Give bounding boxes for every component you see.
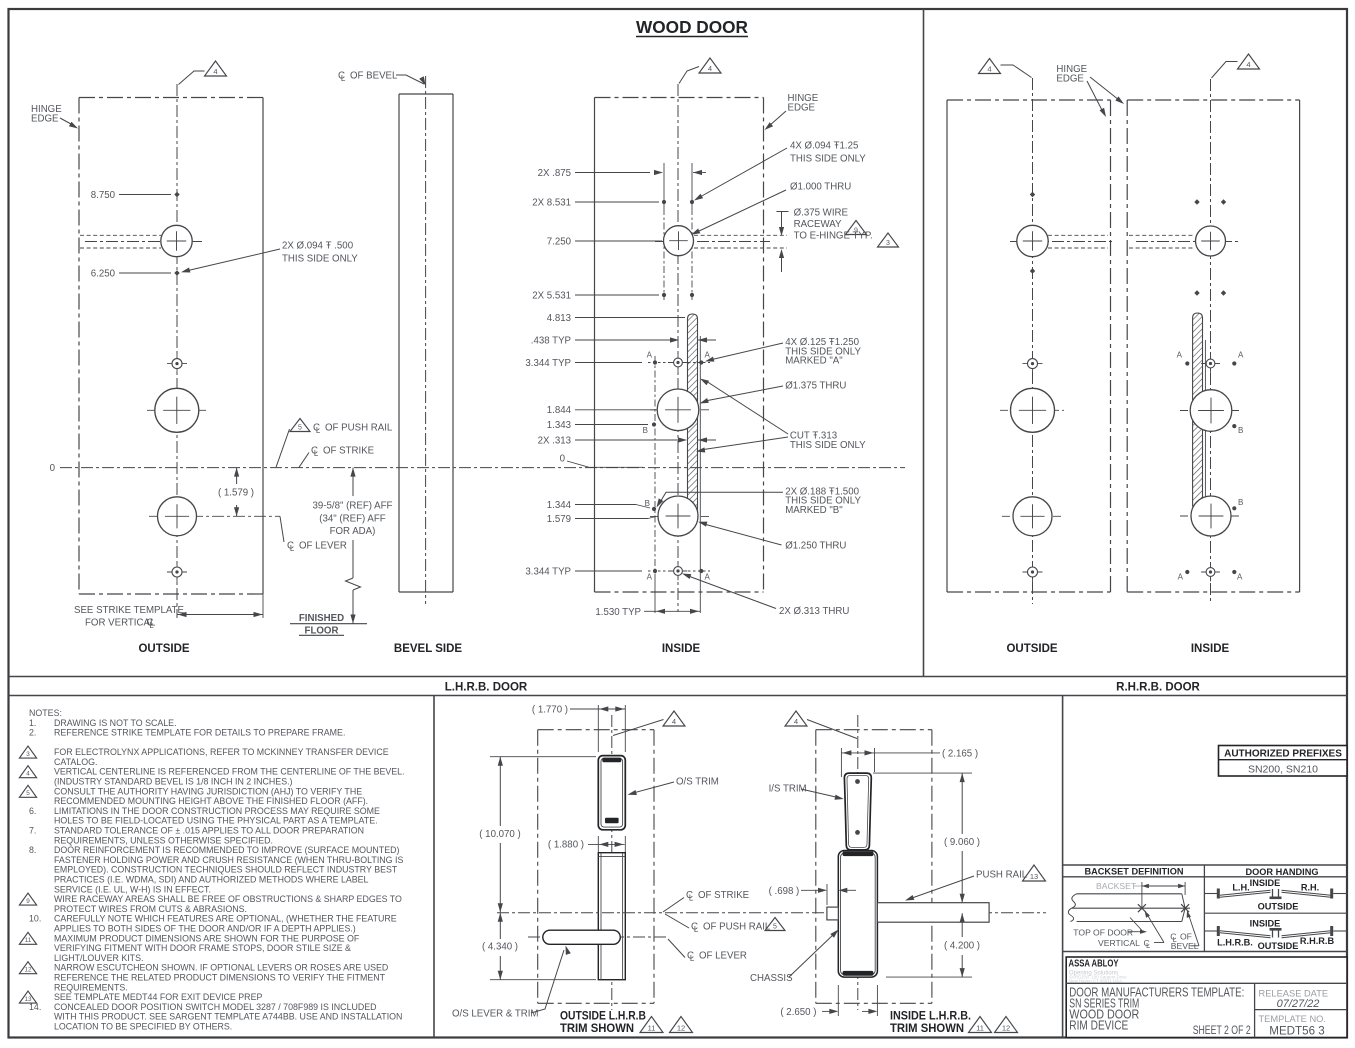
svg-text:New Haven CT 06511 USA: New Haven CT 06511 USA <box>1069 979 1122 984</box>
svg-text:EDGE: EDGE <box>31 114 59 125</box>
svg-text:RIM DEVICE: RIM DEVICE <box>1069 1019 1128 1033</box>
svg-text:R.H.R.B: R.H.R.B <box>1300 936 1335 946</box>
svg-text:2X Ø.094 Ŧ .500: 2X Ø.094 Ŧ .500 <box>282 241 354 252</box>
svg-text:7.250: 7.250 <box>547 236 572 247</box>
svg-text:( 10.070 ): ( 10.070 ) <box>479 829 520 840</box>
svg-text:5: 5 <box>773 923 777 930</box>
svg-text:0: 0 <box>50 463 56 474</box>
svg-text:Ø1.000 THRU: Ø1.000 THRU <box>790 182 851 193</box>
svg-text:WIRE RACEWAY AREAS SHALL BE FR: WIRE RACEWAY AREAS SHALL BE FREE OF OBST… <box>54 894 402 904</box>
svg-text:1.: 1. <box>29 718 36 728</box>
svg-text:FOR VERTICAL: FOR VERTICAL <box>85 617 156 628</box>
svg-text:EMPLOYED). CONSTRUCTION TECHNI: EMPLOYED). CONSTRUCTION TECHNIQUES SHOUL… <box>54 865 398 875</box>
svg-text:L: L <box>314 449 319 458</box>
svg-text:A: A <box>705 351 711 360</box>
svg-text:( 4.200 ): ( 4.200 ) <box>944 940 980 951</box>
svg-text:AUTHORIZED PREFIXES: AUTHORIZED PREFIXES <box>1224 749 1342 760</box>
svg-text:BEVEL SIDE: BEVEL SIDE <box>394 643 462 655</box>
svg-text:OF LEVER: OF LEVER <box>299 541 347 552</box>
svg-text:4: 4 <box>672 717 676 726</box>
svg-text:( .698 ): ( .698 ) <box>769 886 800 897</box>
svg-text:OUTSIDE: OUTSIDE <box>1006 643 1057 655</box>
svg-text:3: 3 <box>886 240 890 247</box>
svg-text:SHEET 2 OF 2: SHEET 2 OF 2 <box>1193 1024 1251 1037</box>
svg-text:4: 4 <box>1246 60 1250 69</box>
svg-text:8.750: 8.750 <box>91 190 116 201</box>
svg-text:TRIM SHOWN: TRIM SHOWN <box>560 1021 634 1035</box>
svg-text:A: A <box>705 573 711 582</box>
svg-text:A: A <box>1238 351 1244 360</box>
svg-text:O/S TRIM: O/S TRIM <box>676 777 719 788</box>
svg-text:( 2.650 ): ( 2.650 ) <box>780 1007 816 1018</box>
svg-text:2X .313: 2X .313 <box>538 435 571 446</box>
svg-text:VERTICAL: VERTICAL <box>1098 938 1140 948</box>
svg-text:3.344 TYP: 3.344 TYP <box>525 358 571 369</box>
svg-text:TEMPLATE NO.: TEMPLATE NO. <box>1259 1014 1327 1024</box>
svg-text:NOTES:: NOTES: <box>29 708 62 718</box>
svg-text:(34" (REF) AFF: (34" (REF) AFF <box>319 513 385 524</box>
svg-text:WITH THIS PRODUCT. SEE SARGEN: WITH THIS PRODUCT. SEE SARGENT TEMPLATE … <box>54 1012 402 1022</box>
svg-text:VERTICAL CENTERLINE IS REFEREN: VERTICAL CENTERLINE IS REFERENCED FROM T… <box>54 767 405 777</box>
svg-text:PROTECT WIRES FROM CUTS & ABRA: PROTECT WIRES FROM CUTS & ABRASIONS. <box>54 904 247 914</box>
svg-text:1.530 TYP: 1.530 TYP <box>595 607 641 618</box>
svg-text:1.844: 1.844 <box>547 405 572 416</box>
svg-text:STANDARD TOLERANCE OF ± .015 A: STANDARD TOLERANCE OF ± .015 APPLIES TO … <box>54 826 364 836</box>
svg-text:L: L <box>341 74 346 83</box>
svg-text:TOP OF DOOR: TOP OF DOOR <box>1073 928 1133 938</box>
svg-text:FOR ELECTROLYNX APPLICATIONS,: FOR ELECTROLYNX APPLICATIONS, REFER TO M… <box>54 747 389 757</box>
svg-text:SEE STRIKE TEMPLATE: SEE STRIKE TEMPLATE <box>74 605 185 616</box>
svg-text:L: L <box>316 426 321 435</box>
svg-text:OF PUSH RAIL: OF PUSH RAIL <box>703 922 771 933</box>
svg-text:.438 TYP: .438 TYP <box>531 335 571 346</box>
svg-text:FASTENER HOLDING POWER AND CRU: FASTENER HOLDING POWER AND CRUSH RESISTA… <box>54 855 403 865</box>
svg-text:VERIFYING FITMENT WITH DOOR FR: VERIFYING FITMENT WITH DOOR FRAME STOPS,… <box>54 943 351 953</box>
svg-text:12: 12 <box>24 967 32 974</box>
svg-text:REFERENCE STRIKE TEMPLATE FOR: REFERENCE STRIKE TEMPLATE FOR DETAILS TO… <box>54 728 345 738</box>
svg-text:OUTSIDE: OUTSIDE <box>138 643 189 655</box>
svg-text:4.813: 4.813 <box>547 313 571 324</box>
svg-text:A: A <box>647 351 653 360</box>
svg-text:1.344: 1.344 <box>547 500 572 511</box>
svg-text:B: B <box>643 426 648 435</box>
svg-text:OF LEVER: OF LEVER <box>699 951 747 962</box>
svg-text:MAXIMUM PRODUCT DIMENSIONS ARE: MAXIMUM PRODUCT DIMENSIONS ARE SHOWN FOR… <box>54 933 360 943</box>
svg-text:1.343: 1.343 <box>547 420 571 431</box>
svg-text:11: 11 <box>976 1023 984 1032</box>
svg-text:INSIDE: INSIDE <box>1191 643 1230 655</box>
svg-text:NARROW ESCUTCHEON SHOWN. IF OP: NARROW ESCUTCHEON SHOWN. IF OPTIONAL LEV… <box>54 963 388 973</box>
svg-text:WOOD DOOR: WOOD DOOR <box>636 17 748 37</box>
svg-text:4: 4 <box>794 717 798 726</box>
svg-text:TRIM SHOWN: TRIM SHOWN <box>890 1021 964 1035</box>
svg-text:9: 9 <box>26 898 30 905</box>
svg-text:L: L <box>689 894 694 903</box>
svg-text:RACEWAY: RACEWAY <box>794 219 842 230</box>
svg-text:BACKSET: BACKSET <box>1096 881 1137 891</box>
svg-text:8.: 8. <box>29 845 36 855</box>
svg-text:THIS SIDE ONLY: THIS SIDE ONLY <box>790 440 866 451</box>
svg-text:OF STRIKE: OF STRIKE <box>323 446 375 457</box>
svg-text:3.344 TYP: 3.344 TYP <box>525 566 571 577</box>
svg-text:CONSULT THE AUTHORITY HAVING J: CONSULT THE AUTHORITY HAVING JURISDICTIO… <box>54 786 362 796</box>
svg-text:SERVICE (I.E. UL, W-H) IS IN E: SERVICE (I.E. UL, W-H) IS IN EFFECT. <box>54 884 211 894</box>
svg-text:REQUIREMENTS, UNLESS OTHERWISE: REQUIREMENTS, UNLESS OTHERWISE SPECIFIED… <box>54 835 273 845</box>
svg-text:CONCEALED DOOR POSITION SWITCH: CONCEALED DOOR POSITION SWITCH MODEL 328… <box>54 1002 377 1012</box>
svg-text:5: 5 <box>26 790 30 797</box>
svg-text:BACKSET DEFINITION: BACKSET DEFINITION <box>1084 866 1183 876</box>
svg-text:L.H.: L.H. <box>1232 883 1249 893</box>
svg-text:L: L <box>694 925 699 934</box>
svg-text:THIS SIDE ONLY: THIS SIDE ONLY <box>790 154 866 165</box>
svg-text:10.: 10. <box>29 914 41 924</box>
svg-text:L: L <box>690 954 695 963</box>
svg-text:EDGE: EDGE <box>1056 74 1084 85</box>
svg-text:12: 12 <box>1002 1023 1010 1032</box>
svg-text:A: A <box>1177 351 1183 360</box>
svg-text:A: A <box>1237 573 1243 582</box>
svg-text:CATALOG.: CATALOG. <box>54 757 97 767</box>
svg-text:RECOMMENDED MOUNTING HEIGHT AB: RECOMMENDED MOUNTING HEIGHT ABOVE THE FI… <box>54 796 368 806</box>
svg-text:ASSA ABLOY: ASSA ABLOY <box>1069 958 1119 970</box>
svg-text:5: 5 <box>298 424 302 431</box>
svg-text:L: L <box>290 544 295 553</box>
svg-text:B: B <box>1238 426 1243 435</box>
svg-text:12: 12 <box>677 1023 685 1032</box>
svg-text:3: 3 <box>26 751 30 758</box>
svg-text:( 1.770 ): ( 1.770 ) <box>532 704 568 715</box>
svg-text:(INDUSTRY STANDARD BEVEL IS 1/: (INDUSTRY STANDARD BEVEL IS 1/8 INCH IN … <box>54 777 293 787</box>
svg-text:TO E-HINGE TYP.: TO E-HINGE TYP. <box>794 231 873 242</box>
svg-text:1.579: 1.579 <box>547 514 571 525</box>
svg-text:SEE TEMPLATE MEDT44 FOR EXIT D: SEE TEMPLATE MEDT44 FOR EXIT DEVICE PREP <box>54 992 262 1002</box>
svg-text:SN200, SN210: SN200, SN210 <box>1248 763 1318 775</box>
svg-text:PRACTICES (I.E. WDMA, SDI) AND: PRACTICES (I.E. WDMA, SDI) AND AUTHORIZE… <box>54 875 369 885</box>
svg-text:MARKED "A": MARKED "A" <box>785 356 843 367</box>
svg-text:B: B <box>645 499 650 508</box>
svg-text:APPLIES TO BOTH SIDES OF THE D: APPLIES TO BOTH SIDES OF THE DOOR AND/OR… <box>54 924 356 934</box>
svg-text:OUTSIDE: OUTSIDE <box>1258 902 1299 912</box>
svg-text:OF PUSH RAIL: OF PUSH RAIL <box>325 423 393 434</box>
svg-text:4: 4 <box>987 64 991 73</box>
svg-text:6.250: 6.250 <box>91 268 116 279</box>
svg-text:B: B <box>1238 498 1243 507</box>
svg-text:RELEASE DATE: RELEASE DATE <box>1259 988 1329 998</box>
svg-text:2X 5.531: 2X 5.531 <box>532 290 571 301</box>
svg-text:2X 8.531: 2X 8.531 <box>532 197 571 208</box>
svg-text:( 1.579 ): ( 1.579 ) <box>218 488 254 499</box>
svg-text:A: A <box>1178 573 1184 582</box>
svg-text:LIMITATIONS IN THE DOOR CONSTR: LIMITATIONS IN THE DOOR CONSTRUCTION PRO… <box>54 806 380 816</box>
svg-text:REQUIREMENTS.: REQUIREMENTS. <box>54 982 128 992</box>
svg-text:LIGHT/LOUVER KITS.: LIGHT/LOUVER KITS. <box>54 953 143 963</box>
svg-text:11: 11 <box>648 1023 656 1032</box>
svg-text:( 2.165 ): ( 2.165 ) <box>942 748 978 759</box>
svg-text:INSIDE: INSIDE <box>1250 919 1281 929</box>
svg-text:4: 4 <box>213 67 217 76</box>
svg-text:HOLES TO BE FIELD-LOCATED USIN: HOLES TO BE FIELD-LOCATED USING THE PHYS… <box>54 816 378 826</box>
svg-text:13: 13 <box>1030 872 1038 881</box>
svg-text:L: L <box>1146 943 1150 950</box>
svg-text:( 4.340 ): ( 4.340 ) <box>482 941 518 952</box>
svg-text:CAREFULLY NOTE WHICH FEATURES: CAREFULLY NOTE WHICH FEATURES ARE OPTION… <box>54 914 397 924</box>
svg-text:DRAWING IS NOT TO SCALE.: DRAWING IS NOT TO SCALE. <box>54 718 177 728</box>
svg-text:4X Ø.094 Ŧ1.25: 4X Ø.094 Ŧ1.25 <box>790 141 858 152</box>
svg-text:OUTSIDE: OUTSIDE <box>1258 941 1299 951</box>
svg-text:( 9.060 ): ( 9.060 ) <box>944 837 980 848</box>
svg-text:L: L <box>149 621 154 630</box>
svg-text:07/27/22: 07/27/22 <box>1277 998 1320 1010</box>
svg-text:( 1.880 ): ( 1.880 ) <box>548 840 584 851</box>
svg-text:39-5/8" (REF) AFF: 39-5/8" (REF) AFF <box>313 501 393 512</box>
svg-text:2.: 2. <box>29 728 36 738</box>
svg-text:OF: OF <box>1180 931 1192 941</box>
svg-text:L.H.R.B. DOOR: L.H.R.B. DOOR <box>445 682 528 694</box>
svg-text:OF BEVEL: OF BEVEL <box>350 70 398 81</box>
svg-text:MARKED "B": MARKED "B" <box>785 505 843 516</box>
svg-text:2X .875: 2X .875 <box>538 168 571 179</box>
svg-text:7.: 7. <box>29 826 36 836</box>
svg-text:OF STRIKE: OF STRIKE <box>698 890 750 901</box>
svg-text:I/S TRIM: I/S TRIM <box>769 784 807 795</box>
svg-text:FLOOR: FLOOR <box>305 625 339 636</box>
svg-text:O/S LEVER & TRIM: O/S LEVER & TRIM <box>452 1009 539 1020</box>
svg-text:6.: 6. <box>29 806 36 816</box>
svg-text:Ø1.375 THRU: Ø1.375 THRU <box>785 380 846 391</box>
svg-text:Ø1.250 THRU: Ø1.250 THRU <box>785 540 846 551</box>
svg-text:INSIDE: INSIDE <box>1250 878 1281 888</box>
svg-text:0: 0 <box>560 454 566 465</box>
svg-text:2X Ø.313 THRU: 2X Ø.313 THRU <box>779 606 849 617</box>
svg-text:Ø.375 WIRE: Ø.375 WIRE <box>794 207 849 218</box>
svg-text:MEDT56 3: MEDT56 3 <box>1269 1025 1324 1038</box>
svg-text:4: 4 <box>708 64 712 73</box>
svg-text:DOOR REINFORCEMENT IS RECOMMEN: DOOR REINFORCEMENT IS RECOMMENDED TO IMP… <box>54 845 399 855</box>
svg-text:INSIDE: INSIDE <box>662 643 701 655</box>
svg-text:LOCATION TO BE SPECIFIED BY OT: LOCATION TO BE SPECIFIED BY OTHERS. <box>54 1022 232 1032</box>
svg-text:CHASSIS: CHASSIS <box>750 973 793 984</box>
svg-text:DOOR HANDING: DOOR HANDING <box>1246 867 1319 877</box>
svg-text:THIS SIDE ONLY: THIS SIDE ONLY <box>282 254 358 265</box>
svg-text:R.H.: R.H. <box>1301 883 1319 893</box>
svg-text:R.H.R.B. DOOR: R.H.R.B. DOOR <box>1116 682 1200 694</box>
svg-text:4: 4 <box>26 771 30 778</box>
svg-text:A: A <box>647 573 653 582</box>
svg-text:EDGE: EDGE <box>788 103 816 114</box>
svg-text:FOR ADA): FOR ADA) <box>330 526 376 537</box>
svg-text:PUSH RAIL: PUSH RAIL <box>976 869 1028 880</box>
svg-text:REFERENCE THE RELATED PRODUCT: REFERENCE THE RELATED PRODUCT DIMENSIONS… <box>54 973 386 983</box>
svg-text:14.: 14. <box>29 1002 41 1012</box>
svg-text:FINISHED: FINISHED <box>299 613 344 624</box>
svg-text:L.H.R.B.: L.H.R.B. <box>1217 938 1253 948</box>
svg-text:11: 11 <box>25 937 32 944</box>
